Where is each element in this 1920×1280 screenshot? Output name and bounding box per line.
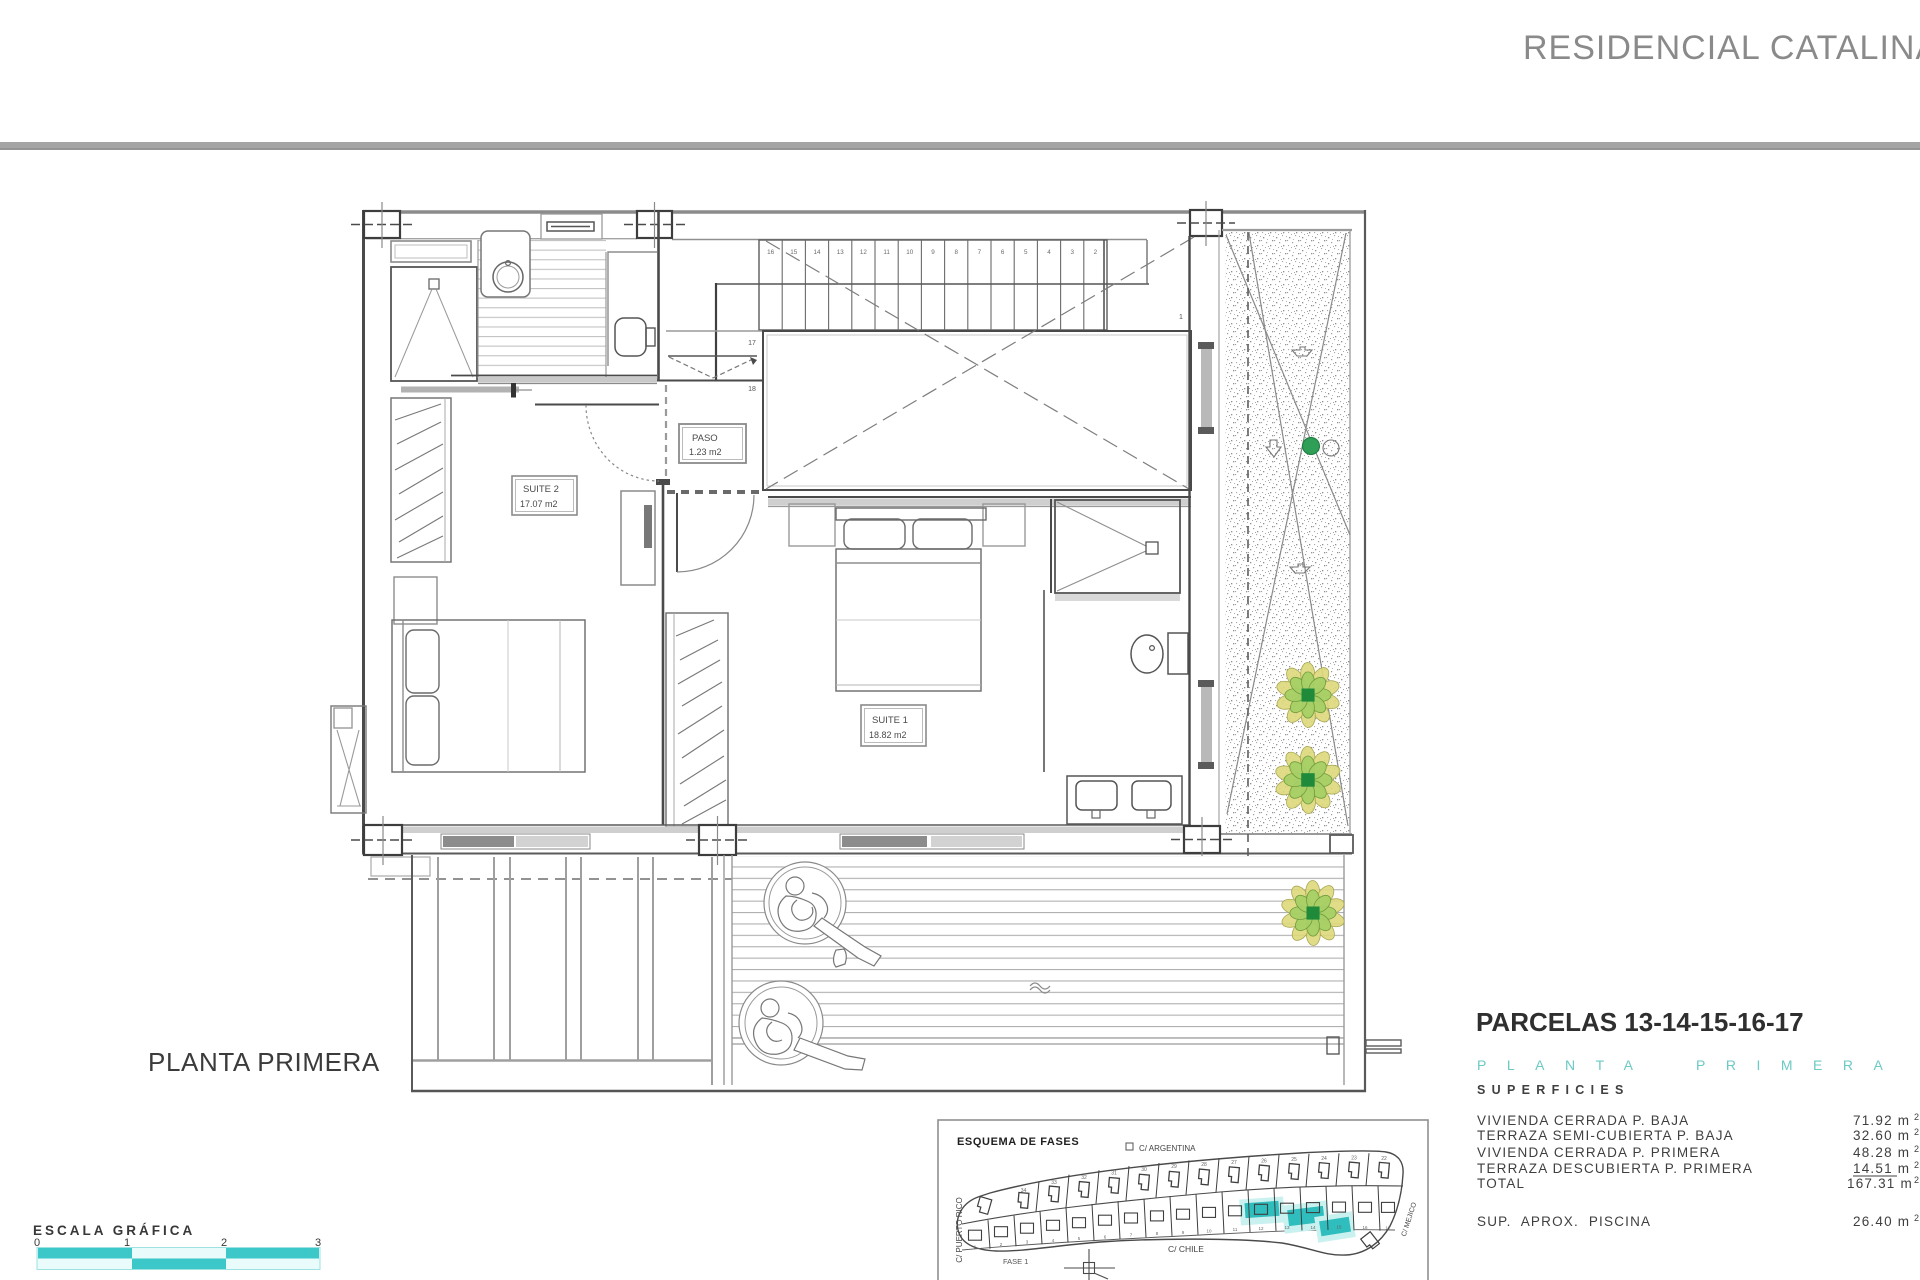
svg-text:2: 2: [1914, 1160, 1919, 1170]
svg-text:17.07 m2: 17.07 m2: [520, 499, 558, 509]
svg-text:12: 12: [860, 249, 868, 256]
svg-text:PLANTA PRIMERA: PLANTA PRIMERA: [148, 1047, 380, 1077]
svg-text:RESIDENCIAL CATALINA: RESIDENCIAL CATALINA: [1523, 29, 1920, 67]
svg-text:26: 26: [1261, 1158, 1267, 1164]
svg-text:15: 15: [790, 249, 798, 256]
svg-text:7: 7: [978, 249, 982, 256]
svg-text:5: 5: [1078, 1236, 1081, 1241]
svg-text:22: 22: [1381, 1156, 1387, 1162]
svg-text:18.82 m2: 18.82 m2: [869, 730, 907, 740]
svg-text:C/ CHILE: C/ CHILE: [1168, 1244, 1204, 1254]
svg-text:33: 33: [1051, 1180, 1057, 1186]
svg-text:FASE 1: FASE 1: [1003, 1257, 1028, 1266]
svg-text:VIVIENDA CERRADA P. PRIMERA: VIVIENDA CERRADA P. PRIMERA: [1477, 1145, 1721, 1160]
svg-text:7: 7: [1130, 1233, 1133, 1238]
svg-text:71.92 m: 71.92 m: [1853, 1113, 1910, 1128]
svg-text:TERRAZA SEMI-CUBIERTA P. BAJA: TERRAZA SEMI-CUBIERTA P. BAJA: [1477, 1128, 1734, 1143]
svg-text:2: 2: [1094, 249, 1098, 256]
svg-text:SUITE 2: SUITE 2: [523, 484, 559, 495]
svg-text:4: 4: [1052, 1238, 1055, 1243]
svg-text:6: 6: [1001, 249, 1005, 256]
svg-text:SUPERFICIES: SUPERFICIES: [1477, 1083, 1630, 1097]
svg-text:14.51 m: 14.51 m: [1853, 1161, 1910, 1176]
svg-text:24: 24: [1321, 1156, 1327, 1162]
svg-text:11: 11: [883, 249, 890, 256]
svg-text:13: 13: [1284, 1225, 1290, 1230]
svg-text:16: 16: [767, 249, 775, 256]
svg-text:3: 3: [1026, 1240, 1029, 1245]
svg-text:31: 31: [1111, 1170, 1117, 1176]
svg-text:1.23 m2: 1.23 m2: [689, 447, 722, 457]
svg-text:17: 17: [1385, 1225, 1391, 1230]
svg-text:32: 32: [1081, 1175, 1087, 1181]
svg-text:5: 5: [1024, 249, 1028, 256]
svg-text:3: 3: [1070, 249, 1074, 256]
svg-text:34: 34: [1021, 1188, 1027, 1194]
svg-text:ESCALA GRÁFICA: ESCALA GRÁFICA: [33, 1223, 195, 1238]
svg-text:PLANTA PRIMERA: PLANTA PRIMERA: [1477, 1057, 1903, 1073]
svg-text:48.28 m: 48.28 m: [1853, 1145, 1910, 1160]
svg-text:17: 17: [748, 340, 756, 347]
svg-text:15: 15: [1336, 1225, 1342, 1230]
svg-text:11: 11: [1233, 1227, 1238, 1232]
svg-text:13: 13: [837, 249, 845, 256]
svg-text:SUITE 1: SUITE 1: [872, 715, 908, 726]
svg-text:32.60 m: 32.60 m: [1853, 1128, 1910, 1143]
svg-text:2: 2: [1914, 1213, 1919, 1223]
svg-text:10: 10: [906, 249, 914, 256]
svg-text:PASO: PASO: [692, 433, 718, 444]
svg-text:28: 28: [1201, 1162, 1207, 1168]
svg-text:ESQUEMA DE FASES: ESQUEMA DE FASES: [957, 1136, 1079, 1148]
svg-text:29: 29: [1171, 1164, 1177, 1170]
svg-text:6: 6: [1104, 1234, 1107, 1239]
svg-text:8: 8: [954, 249, 958, 256]
svg-text:27: 27: [1231, 1160, 1237, 1166]
svg-text:2: 2: [1914, 1144, 1919, 1154]
svg-text:2: 2: [1000, 1242, 1003, 1247]
svg-text:30: 30: [1141, 1167, 1147, 1173]
svg-text:9: 9: [1182, 1230, 1185, 1235]
svg-text:TOTAL: TOTAL: [1477, 1176, 1525, 1191]
svg-text:14: 14: [1310, 1225, 1316, 1230]
svg-text:8: 8: [1156, 1231, 1159, 1236]
svg-text:C/ MEJICO: C/ MEJICO: [1401, 1201, 1419, 1237]
svg-text:23: 23: [1351, 1156, 1357, 1162]
svg-text:TERRAZA DESCUBIERTA P. PRIMERA: TERRAZA DESCUBIERTA P. PRIMERA: [1477, 1161, 1753, 1176]
svg-text:167.31 m: 167.31 m: [1847, 1176, 1913, 1191]
svg-text:C/ ARGENTINA: C/ ARGENTINA: [1139, 1144, 1196, 1153]
svg-text:SUP. APROX. PISCINA: SUP. APROX. PISCINA: [1477, 1214, 1651, 1229]
svg-text:18: 18: [748, 386, 756, 393]
svg-text:2: 2: [1914, 1127, 1919, 1137]
svg-text:4: 4: [1047, 249, 1051, 256]
svg-text:16: 16: [1362, 1225, 1368, 1230]
svg-text:25: 25: [1291, 1157, 1297, 1163]
svg-text:14: 14: [813, 249, 821, 256]
svg-text:2: 2: [1914, 1112, 1919, 1122]
svg-text:2: 2: [1914, 1175, 1919, 1185]
svg-text:VIVIENDA CERRADA P. BAJA: VIVIENDA CERRADA P. BAJA: [1477, 1113, 1689, 1128]
svg-text:PARCELAS 13-14-15-16-17: PARCELAS 13-14-15-16-17: [1476, 1007, 1804, 1037]
svg-text:10: 10: [1206, 1229, 1212, 1234]
svg-text:1: 1: [1179, 314, 1183, 321]
svg-text:12: 12: [1258, 1226, 1264, 1231]
svg-text:9: 9: [931, 249, 935, 256]
svg-text:26.40 m: 26.40 m: [1853, 1214, 1910, 1229]
